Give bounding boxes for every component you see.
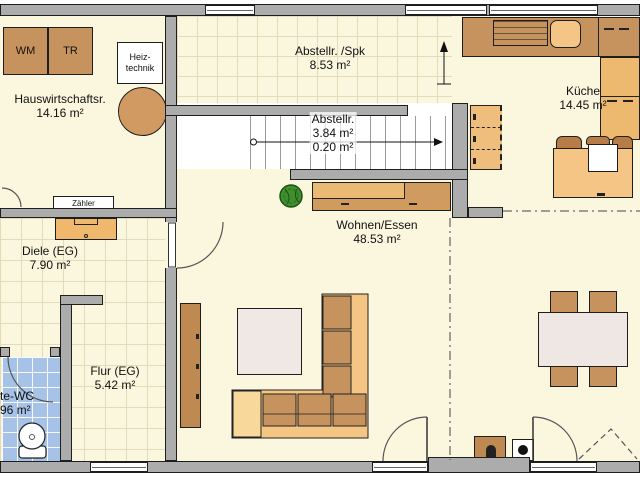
- window: [205, 5, 255, 15]
- wall-stairs-bottom: [290, 169, 468, 180]
- window: [489, 5, 598, 15]
- stairs-sideboard-top: [313, 183, 405, 199]
- diele-sideboard-knob: [84, 234, 88, 238]
- washing-machine-label: WM: [16, 45, 36, 57]
- wall-kitchen-stub: [468, 207, 503, 218]
- wall-stairs-top: [165, 105, 408, 116]
- kitchen-upper-cabinet: [470, 105, 502, 170]
- diele-sideboard: [55, 218, 117, 240]
- diele-sideboard-notch: [74, 219, 98, 225]
- dishwasher-icon: [493, 20, 548, 46]
- room-label-kueche: Küche 14.45 m²: [559, 84, 606, 112]
- terrace-door: [530, 462, 597, 472]
- heating-unit-label1: Heiz-: [129, 52, 150, 63]
- room-label-wohnen-essen: Wohnen/Essen 48.53 m²: [336, 218, 417, 246]
- window: [405, 5, 487, 15]
- room-label-flur: Flur (EG) 5.42 m²: [90, 364, 139, 392]
- dryer: TR: [48, 27, 93, 75]
- wall-wc-stub: [60, 295, 103, 305]
- wall-stairs-right: [452, 103, 468, 218]
- terrace-door: [372, 462, 428, 472]
- room-label-hauswirtschaftsraum: Hauswirtschaftsr. 14.16 m²: [14, 92, 105, 120]
- window: [90, 462, 148, 472]
- room-label-abstellraum-spk: Abstellr. /Spk 8.53 m²: [295, 44, 365, 72]
- wall-wc-top-right: [50, 347, 60, 357]
- meter-cabinet-label: Zähler: [72, 199, 95, 208]
- wall-hwr-diele: [0, 208, 177, 218]
- washing-machine: WM: [3, 27, 48, 75]
- dining-chair: [550, 291, 578, 314]
- dining-chair: [589, 291, 617, 314]
- dining-chair: [550, 364, 578, 387]
- tall-cabinet: [180, 303, 201, 428]
- stairs-sideboard: [312, 182, 451, 211]
- wall-wc-top-left: [0, 347, 10, 357]
- dining-chair: [589, 364, 617, 387]
- wall-wc-vertical: [60, 295, 72, 461]
- door-opening-diele: [165, 222, 177, 268]
- dryer-label: TR: [63, 45, 78, 57]
- kitchen-counter: [462, 17, 640, 57]
- heating-unit-label2: technik: [126, 63, 155, 74]
- room-label-gaeste-wc: te-WC 96 m²: [0, 389, 34, 417]
- boiler-tank-icon: [118, 87, 167, 136]
- wall-bottom-pier: [428, 457, 530, 473]
- island-hob: [588, 144, 618, 172]
- pet-house: [474, 436, 506, 458]
- coffee-table: [237, 308, 302, 375]
- dining-table: [538, 312, 628, 367]
- floor-plan: WM TR Heiz- technik Zähler: [0, 0, 640, 480]
- kitchen-sink-icon: [550, 20, 581, 48]
- room-label-abstellraum-treppe: Abstellr. 3.84 m² 0.20 m²: [310, 112, 357, 154]
- heating-unit: Heiz- technik: [117, 42, 163, 84]
- room-label-diele: Diele (EG) 7.90 m²: [22, 244, 78, 272]
